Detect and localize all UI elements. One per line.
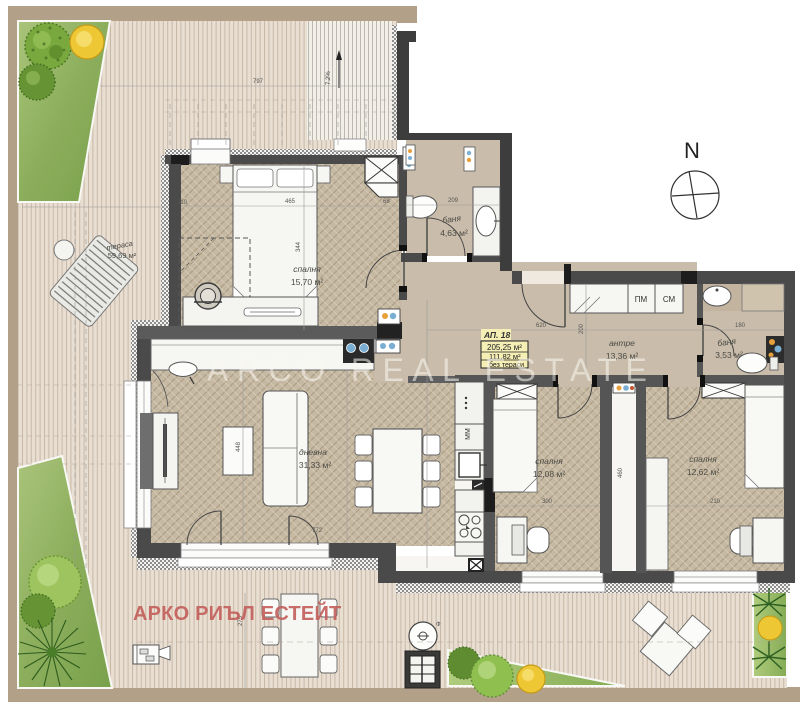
svg-text:АРКО РИЪЛ ЕСТЕЙТ: АРКО РИЪЛ ЕСТЕЙТ xyxy=(133,601,341,625)
svg-text:620: 620 xyxy=(536,323,547,329)
svg-text:спалня: спалня xyxy=(535,456,563,466)
svg-text:СМ: СМ xyxy=(663,295,676,304)
svg-text:209: 209 xyxy=(448,198,459,204)
svg-text:460: 460 xyxy=(618,467,624,478)
svg-text:4,63 м²: 4,63 м² xyxy=(440,228,468,238)
svg-text:300: 300 xyxy=(542,499,553,505)
svg-text:7.2%: 7.2% xyxy=(326,71,332,85)
svg-text:31,33 м²: 31,33 м² xyxy=(299,460,331,470)
svg-text:448: 448 xyxy=(236,441,242,452)
svg-text:797: 797 xyxy=(253,79,264,85)
svg-text:465: 465 xyxy=(285,199,296,205)
svg-text:15,70 м²: 15,70 м² xyxy=(291,277,323,287)
svg-text:N: N xyxy=(684,138,700,163)
svg-text:68: 68 xyxy=(383,199,390,205)
svg-text:200: 200 xyxy=(579,323,585,334)
svg-text:ПМ: ПМ xyxy=(635,295,648,304)
svg-text:АП. 18: АП. 18 xyxy=(483,330,510,340)
svg-text:спалня: спалня xyxy=(689,454,717,464)
svg-text:210: 210 xyxy=(710,499,721,505)
svg-text:антре: антре xyxy=(609,338,635,348)
svg-text:ARCO REAL ESTATE: ARCO REAL ESTATE xyxy=(207,352,655,388)
svg-text:12,62 м²: 12,62 м² xyxy=(687,467,719,477)
svg-text:310: 310 xyxy=(177,200,188,206)
svg-text:180: 180 xyxy=(735,323,746,329)
svg-text:дневна: дневна xyxy=(299,447,327,457)
svg-text:12,08 м²: 12,08 м² xyxy=(533,469,565,479)
svg-text:3,53 м²: 3,53 м² xyxy=(715,350,743,360)
svg-text:спалня: спалня xyxy=(293,264,321,274)
svg-text:344: 344 xyxy=(296,241,302,252)
svg-text:ММ: ММ xyxy=(465,428,472,440)
svg-text:Ф: Ф xyxy=(436,622,441,628)
svg-text:205,25 м²: 205,25 м² xyxy=(487,343,522,352)
svg-text:59,69 м²: 59,69 м² xyxy=(108,251,137,260)
svg-text:772: 772 xyxy=(312,528,323,534)
